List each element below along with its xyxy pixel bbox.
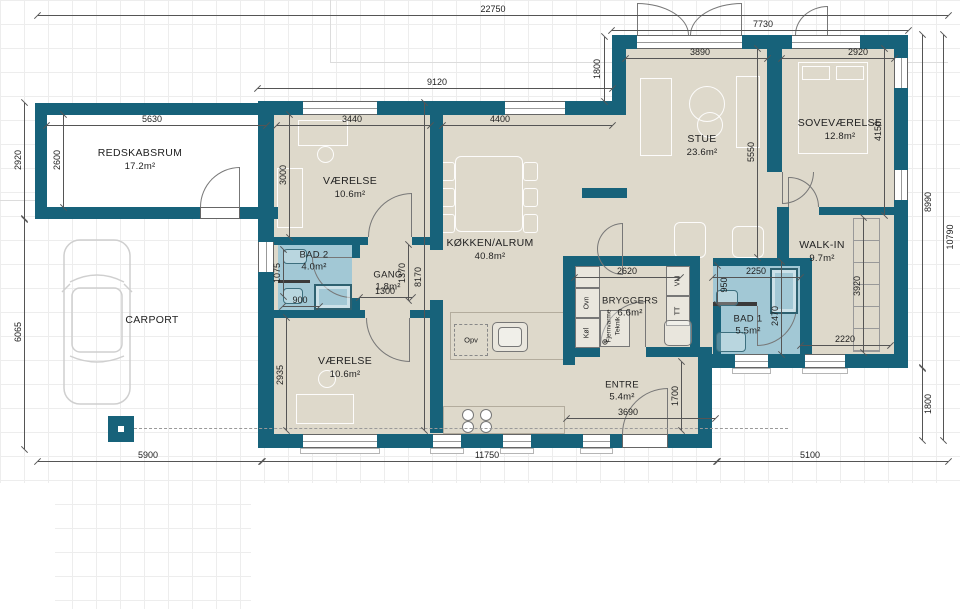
room-label-vaerelse-sw: VÆRELSE10.6m² [318, 355, 372, 381]
door-leaf [788, 177, 789, 207]
dimension-line [612, 30, 908, 31]
chair [523, 214, 538, 233]
wall [894, 200, 908, 368]
car-outline [60, 236, 134, 408]
wall [742, 35, 792, 49]
dimension-line [262, 461, 717, 462]
site-boundary-line [330, 0, 331, 63]
room-label-bad2: BAD 24.0m² [300, 250, 329, 275]
dimension-label: 4400 [490, 114, 510, 124]
kitchen-counter [443, 406, 565, 434]
window [805, 354, 845, 368]
dimension-line [443, 125, 612, 126]
wall [767, 49, 782, 172]
room-label-bryggers: BRYGGERS6.6m² [602, 296, 658, 321]
dimension-label: 22750 [480, 4, 505, 14]
room-label-vaerelse-nw: VÆRELSE10.6m² [323, 175, 377, 201]
dimension-label: 2470 [770, 306, 780, 326]
room-label-entre: ENTRE5.4m² [605, 380, 639, 405]
dimension-label: 10790 [945, 224, 955, 249]
armchair [674, 222, 706, 258]
dimension-label: 1800 [592, 59, 602, 79]
wall [800, 258, 812, 354]
room-label-bad1: BAD 15.5m² [734, 314, 763, 339]
dimension-line [277, 125, 430, 126]
background-cover [251, 483, 960, 609]
dimension-line [289, 115, 290, 237]
dimension-label: 7730 [753, 19, 773, 29]
door-leaf [239, 167, 240, 207]
dimension-line [283, 250, 284, 296]
dimension-label: 6065 [13, 322, 23, 342]
window-sill [580, 448, 613, 454]
dimension-label: 1700 [670, 386, 680, 406]
dimension-label: 1800 [923, 394, 933, 414]
dimension-label: 3440 [342, 114, 362, 124]
stove-burner [480, 409, 492, 421]
dimension-line [567, 418, 715, 419]
wall [777, 207, 789, 265]
wall [258, 101, 274, 242]
dimension-label: 2620 [617, 266, 637, 276]
dimension-label: 5550 [746, 142, 756, 162]
wall [845, 354, 908, 368]
pillow [836, 66, 864, 80]
fridge-label: Køl [584, 328, 591, 339]
door-leaf [409, 318, 410, 362]
window [503, 434, 531, 448]
carport-post-center [118, 426, 124, 432]
dimension-line [38, 15, 948, 16]
room-label-stue: STUE23.6m² [687, 133, 718, 159]
desk [298, 120, 348, 146]
room-label-carport: CARPORT [125, 314, 178, 328]
wall [565, 101, 626, 115]
dimension-label: 11750 [475, 450, 499, 460]
dimension-line [47, 125, 266, 126]
dimension-line [408, 245, 409, 300]
window-sill [802, 368, 848, 374]
dimension-line [63, 115, 64, 207]
tv-unit [640, 78, 672, 156]
room-label-sovevaerelse: SOVEVÆRELSE12.8m² [798, 117, 882, 143]
wall [412, 237, 443, 245]
chair [523, 162, 538, 181]
window-sill [732, 368, 771, 374]
window-sill [430, 448, 464, 454]
wall [430, 115, 443, 250]
carport-boundary [134, 428, 788, 429]
dimension-label: 2935 [275, 365, 285, 385]
wall [258, 272, 274, 448]
desk [296, 394, 354, 424]
dimension-label: 8990 [923, 192, 933, 212]
wall [698, 347, 712, 448]
dimension-line [575, 277, 680, 278]
dimension-label: 1075 [272, 263, 282, 283]
wall [646, 347, 700, 357]
dimension-line [38, 461, 262, 462]
wall [35, 103, 47, 219]
chair [523, 188, 538, 207]
dining-table [455, 156, 523, 232]
dimension-label: 3890 [690, 47, 710, 57]
window [894, 58, 908, 88]
dimension-line [863, 218, 864, 352]
dimension-label: 3690 [618, 407, 638, 417]
room-label-koekken: KØKKEN/ALRUM40.8m² [446, 237, 533, 263]
wall [668, 434, 712, 448]
room-label-redskabsrum: REDSKABSRUM17.2m² [98, 147, 182, 173]
wall [258, 434, 303, 448]
window [583, 434, 610, 448]
background-cover [0, 483, 55, 609]
window [433, 434, 461, 448]
wall [612, 35, 637, 49]
wall [610, 434, 622, 448]
dimension-label: 950 [719, 277, 729, 292]
dimension-line [717, 266, 718, 304]
room-label-walkin: WALK-IN9.7m² [799, 239, 844, 265]
dimension-line [943, 35, 944, 440]
door-leaf [782, 172, 783, 204]
dimension-line [884, 49, 885, 215]
dimension-label: 900 [292, 295, 307, 305]
wall [531, 434, 583, 448]
wall [563, 347, 600, 357]
wall [430, 300, 443, 433]
dimension-label: 8170 [413, 267, 423, 287]
stove-burner [462, 421, 474, 433]
dimension-line [626, 58, 767, 59]
wall [377, 101, 505, 115]
dimension-line [604, 37, 605, 101]
wall [782, 207, 789, 215]
dishwasher-label: Opv [464, 336, 478, 345]
dimension-label: 4150 [873, 121, 883, 141]
dimension-line [24, 219, 25, 449]
oven-label: Ovn [584, 297, 591, 310]
wall [35, 207, 200, 219]
window [505, 101, 565, 115]
heating-symbol-icon: ⊕ [602, 338, 609, 347]
wall [894, 88, 908, 170]
window-sill [300, 448, 380, 454]
sink-basin [498, 327, 522, 347]
dimension-label: 5900 [138, 450, 158, 460]
dimension-line [757, 49, 758, 257]
dimension-line [801, 345, 890, 346]
dimension-line [286, 318, 287, 430]
dimension-label: 3920 [852, 276, 862, 296]
stove-burner [462, 409, 474, 421]
window [303, 434, 377, 448]
dimension-line [782, 58, 894, 59]
armchair [732, 226, 764, 258]
door-panel [200, 207, 240, 219]
dimension-line [283, 306, 319, 307]
window [303, 101, 377, 115]
dimension-line [424, 103, 425, 430]
dimension-line [24, 103, 25, 219]
wall [582, 188, 627, 198]
dimension-label: 2220 [835, 334, 855, 344]
laundry-sink [664, 320, 692, 346]
dryer-label: TT [675, 307, 682, 316]
dimension-label: 2920 [13, 150, 23, 170]
wall [410, 310, 443, 318]
dimension-label: 1370 [397, 263, 407, 283]
door-leaf [411, 193, 412, 237]
dimension-line [681, 362, 682, 430]
window [735, 354, 768, 368]
dimension-label: 1300 [375, 286, 395, 296]
pillow [802, 66, 830, 80]
chair [317, 146, 334, 163]
floor-plan-canvas: Opv Ovn Køl VM TT Fjernvarme Teknik ⊕ RE… [0, 0, 960, 609]
wall [768, 354, 805, 368]
wall [563, 256, 690, 266]
dimension-label: 2920 [848, 47, 868, 57]
dimension-label: 2600 [52, 150, 62, 170]
wall [461, 434, 503, 448]
wall [274, 310, 365, 318]
wall [274, 237, 368, 245]
window-sill [500, 448, 534, 454]
dimension-label: 3000 [278, 165, 288, 185]
stove-burner [480, 421, 492, 433]
dimension-line [258, 88, 612, 89]
dimension-label: 5630 [142, 114, 162, 124]
dimension-line [781, 262, 782, 354]
dimension-label: 9120 [427, 77, 447, 87]
window [894, 170, 908, 200]
dimension-label: 2250 [746, 266, 766, 276]
dimension-label: 5100 [800, 450, 820, 460]
wall [377, 434, 433, 448]
dimension-line [360, 297, 412, 298]
dimension-line [717, 461, 948, 462]
wall [352, 245, 360, 258]
front-door [622, 434, 668, 448]
